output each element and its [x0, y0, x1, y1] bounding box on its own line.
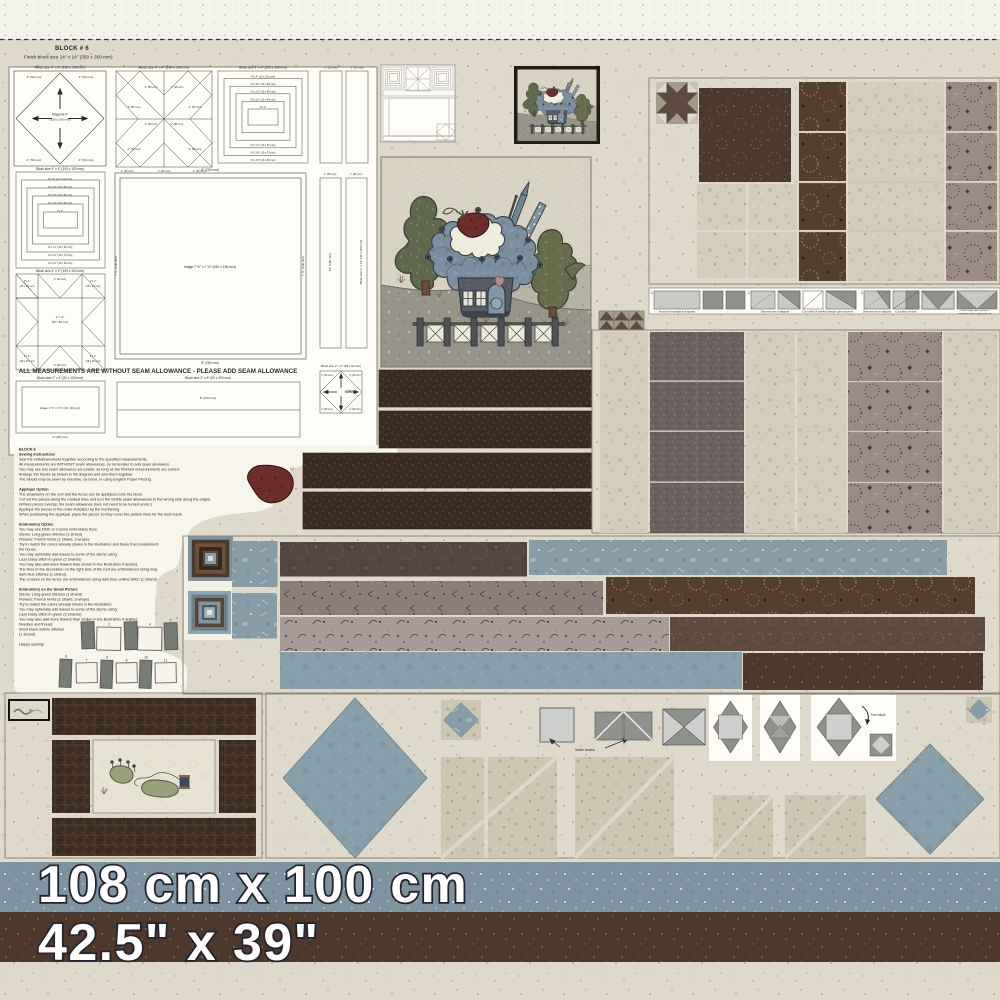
svg-text:2" (50 mm): 2" (50 mm)	[79, 75, 94, 79]
svg-text:Image 7 ½" x 7 ½" (190 x 19: Image 7 ½" x 7 ½" (190 x 190 mm)	[184, 265, 236, 269]
svg-text:2" (50 mm): 2" (50 mm)	[128, 105, 141, 109]
svg-text:1"x 1": 1"x 1"	[24, 355, 31, 358]
svg-text:ALL MEASUREMENTS ARE WITHOUT S: ALL MEASUREMENTS ARE WITHOUT SEAM ALLOWA…	[19, 368, 297, 375]
svg-text:1" (25 mm): 1" (25 mm)	[171, 122, 184, 126]
svg-text:1" (25 mm): 1" (25 mm)	[350, 66, 363, 70]
svg-text:Cut outside of seam: Cut outside of seam	[802, 311, 823, 314]
svg-text:2" (50 mm): 2" (50 mm)	[54, 278, 66, 281]
svg-text:2" (50 mm): 2" (50 mm)	[145, 85, 158, 89]
svg-text:⅜"x 1⅝" (10 x 40 mm): ⅜"x 1⅝" (10 x 40 mm)	[48, 202, 73, 205]
svg-text:Try to match the colors alread: Try to match the colors already shown in…	[19, 543, 159, 547]
svg-text:10: 10	[144, 656, 148, 660]
svg-text:Lazy Daisy stitch in green (2: Lazy Daisy stitch in green (2 strands)	[19, 613, 82, 617]
svg-text:(25 x 25 mm): (25 x 25 mm)	[20, 285, 35, 288]
svg-text:1" (25 mm): 1" (25 mm)	[324, 172, 337, 176]
svg-text:1"x 1": 1"x 1"	[90, 280, 97, 283]
svg-text:1" (25 mm): 1" (25 mm)	[349, 375, 361, 377]
svg-text:2" (50 mm): 2" (50 mm)	[79, 158, 94, 162]
svg-text:6: 6	[65, 655, 67, 659]
svg-text:Appliqué the pieces in the ord: Appliqué the pieces in the order indicat…	[19, 508, 120, 512]
svg-text:1"x 1": 1"x 1"	[24, 280, 31, 283]
svg-text:1"x 1": 1"x 1"	[57, 210, 64, 213]
svg-text:Block size 2" x 4" (50 x 100: Block size 2" x 4" (50 x 100 mm)	[37, 376, 83, 380]
svg-text:8" (200 mm): 8" (200 mm)	[201, 361, 218, 365]
svg-text:(1 strand): (1 strand)	[19, 633, 36, 637]
svg-text:Turn block: Turn block	[871, 713, 886, 717]
svg-text:Block size 4" x 4" (100 x 1: Block size 4" x 4" (100 x 100 mm)	[139, 66, 190, 70]
svg-text:(25 x 25 mm): (25 x 25 mm)	[86, 360, 101, 363]
svg-text:(50 x 50 mm): (50 x 50 mm)	[52, 320, 69, 324]
svg-text:⅜"x 1⅝" (10 x 40 mm): ⅜"x 1⅝" (10 x 40 mm)	[251, 98, 276, 101]
svg-text:⅜"x 2½" (10 x 60 mm): ⅜"x 2½" (10 x 60 mm)	[251, 90, 276, 94]
svg-text:1"x 1": 1"x 1"	[90, 355, 97, 358]
svg-text:Try to match the colors alread: Try to match the colors already shown in…	[19, 603, 113, 607]
svg-text:4: 4	[149, 623, 151, 627]
svg-text:You may use DMC or Cosmo embro: You may use DMC or Cosmo embroidery flos…	[19, 528, 98, 532]
svg-text:Happy sewing!: Happy sewing!	[19, 643, 44, 647]
svg-text:Block size 2" x 2" (50 x 50 m: Block size 2" x 2" (50 x 50 mm)	[321, 364, 361, 368]
svg-text:1" (25 mm): 1" (25 mm)	[145, 122, 158, 126]
svg-text:⅜"x 1⅞" (10 x 50 mm): ⅜"x 1⅞" (10 x 50 mm)	[48, 246, 73, 249]
svg-text:Stems: Long green stitches (1: Stems: Long green stitches (1 strand)	[19, 593, 83, 597]
svg-text:2" (50 mm): 2" (50 mm)	[189, 147, 202, 151]
svg-text:11: 11	[164, 659, 168, 663]
svg-text:1" (25 mm): 1" (25 mm)	[321, 375, 333, 377]
svg-text:Block size 4" x 4" (100 x 10: Block size 4" x 4" (100 x 100 mm)	[36, 167, 84, 171]
svg-text:dark blue stitches (1 strand).: dark blue stitches (1 strand).	[19, 573, 67, 577]
svg-text:The lines in the decoration on: The lines in the decoration on the right…	[19, 568, 157, 572]
svg-text:Block size 4" x 4" (100 x 10: Block size 4" x 4" (100 x 100 mm)	[36, 269, 84, 273]
svg-text:Image 1 ½" x 3 ½" (40 x 90 m: Image 1 ½" x 3 ½" (40 x 90 mm)	[40, 406, 80, 410]
svg-text:3: 3	[130, 618, 132, 622]
svg-text:Embroidery on the Small Pictur: Embroidery on the Small Picture	[19, 588, 78, 592]
svg-text:⅜"x 3⅝" (10 x 90 mm): ⅜"x 3⅝" (10 x 90 mm)	[251, 83, 276, 86]
svg-text:1" (25 mm): 1" (25 mm)	[158, 169, 171, 173]
svg-text:7 ½" (190 mm): 7 ½" (190 mm)	[301, 256, 305, 276]
svg-text:7: 7	[86, 659, 88, 663]
svg-text:2: 2	[108, 623, 110, 627]
svg-text:When positioning the appliqué,: When positioning the appliqué, place the…	[19, 513, 183, 517]
svg-text:You may also add more flowers: You may also add more flowers than shown…	[19, 563, 138, 567]
svg-text:⅜"x 2⅝" (10 x 70 mm): ⅜"x 2⅝" (10 x 70 mm)	[48, 254, 73, 257]
svg-text:Block size 2" x 8" (50 x 20: Block size 2" x 8" (50 x 200 mm)	[185, 376, 231, 380]
svg-text:8: 8	[106, 656, 108, 660]
svg-text:2" (50 mm): 2" (50 mm)	[128, 147, 141, 151]
svg-text:1" (25 mm): 1" (25 mm)	[350, 172, 363, 176]
svg-text:Sew the individual blocks toge: Sew the individual blocks together accor…	[19, 458, 148, 462]
svg-text:1: 1	[87, 618, 89, 622]
svg-text:⅜"x 1⅞" (10 x 50 mm): ⅜"x 1⅞" (10 x 50 mm)	[251, 144, 276, 147]
svg-text:Block size 4" x 4" (100 x 10: Block size 4" x 4" (100 x 100 mm)	[239, 66, 287, 70]
svg-text:(Where pieces overlap, the sea: (Where pieces overlap, the seam allowanc…	[19, 503, 153, 507]
svg-text:⅜"x 4" (10 x 100 mm): ⅜"x 4" (10 x 100 mm)	[251, 76, 275, 79]
svg-text:(25 x 25 mm): (25 x 25 mm)	[20, 360, 35, 363]
svg-text:Block size 1" x 12" (30 x 30: Block size 1" x 12" (30 x 300 mm)	[359, 240, 363, 285]
svg-text:All measurements are WITHOUT s: All measurements are WITHOUT seam allowa…	[19, 463, 170, 467]
svg-text:The blocks may be sewn by mach: The blocks may be sewn by machine, by ha…	[19, 478, 152, 482]
svg-text:2" x 2": 2" x 2"	[56, 315, 65, 319]
svg-text:Short black outline stitches: Short black outline stitches	[19, 628, 64, 632]
svg-text:7 ½" (190 mm): 7 ½" (190 mm)	[114, 256, 118, 276]
svg-text:2" (50 mm): 2" (50 mm)	[27, 158, 42, 162]
svg-text:⅜"x 3⅝" (10 x 90 mm): ⅜"x 3⅝" (10 x 90 mm)	[251, 159, 276, 162]
svg-text:You may optionally add leaves: You may optionally add leaves to some of…	[19, 608, 118, 612]
svg-text:12" (300 mm): 12" (300 mm)	[328, 253, 332, 271]
svg-text:Appliqué Option: Appliqué Option	[19, 488, 49, 492]
svg-text:You may use any seam allowance: You may use any seam allowance you prefe…	[19, 468, 181, 472]
svg-text:(25 x 25 mm): (25 x 25 mm)	[86, 285, 101, 288]
svg-text:Fold triangle open and press: Fold triangle open and press	[823, 311, 854, 314]
svg-text:1" (25 mm): 1" (25 mm)	[321, 409, 333, 411]
svg-text:Finish block size 14" x 14": Finish block size 14" x 14" (350 x 350 m…	[24, 55, 113, 60]
svg-text:108 cm x 100 cm: 108 cm x 100 cm	[38, 856, 468, 914]
svg-text:Needles and thread:: Needles and thread:	[19, 623, 53, 627]
svg-text:Embroidery Option: Embroidery Option	[19, 523, 54, 527]
svg-text:Arrange the blocks as shown in: Arrange the blocks as shown in the diagr…	[19, 473, 133, 477]
svg-text:Stems: Long green stitches (1: Stems: Long green stitches (1 strand)	[19, 533, 83, 537]
svg-text:42.5" x 39": 42.5" x 39"	[38, 914, 320, 972]
svg-text:Diagonal 4": Diagonal 4"	[52, 113, 68, 117]
svg-text:5: 5	[170, 619, 172, 623]
svg-text:1" (25 mm): 1" (25 mm)	[349, 409, 361, 411]
svg-text:⅜"x 2⅝" (10 x 70 mm): ⅜"x 2⅝" (10 x 70 mm)	[251, 151, 276, 154]
svg-text:2" (50 mm): 2" (50 mm)	[54, 364, 66, 367]
svg-text:(100 x 100 mm): (100 x 100 mm)	[49, 118, 70, 122]
svg-text:Make marks: Make marks	[575, 748, 595, 752]
svg-text:The crosses on the fence are e: The crosses on the fence are embroidered…	[19, 578, 158, 582]
svg-text:2" (50 mm): 2" (50 mm)	[27, 75, 42, 79]
svg-text:⅜"x 3⅝" (10 x 90 mm): ⅜"x 3⅝" (10 x 90 mm)	[48, 186, 73, 189]
svg-text:⅜"x 2½" (10 x 60 mm): ⅜"x 2½" (10 x 60 mm)	[48, 193, 73, 197]
svg-text:2.: 2.	[748, 291, 751, 295]
svg-text:8" (200 mm): 8" (200 mm)	[200, 396, 216, 400]
svg-text:⅜"x 4" (10 x 100 mm): ⅜"x 4" (10 x 100 mm)	[48, 178, 72, 181]
svg-text:1.: 1.	[651, 291, 654, 295]
svg-text:Amount of rectangles and squar: Amount of rectangles and squares	[659, 311, 696, 314]
svg-text:8" (200 mm): 8" (200 mm)	[201, 168, 218, 172]
svg-text:⅜"x 3⅝" (10 x 90 mm): ⅜"x 3⅝" (10 x 90 mm)	[48, 262, 73, 265]
svg-text:12: 12	[290, 467, 294, 471]
svg-text:the house.: the house.	[19, 548, 37, 552]
svg-text:3.: 3.	[861, 291, 864, 295]
svg-text:Block size 4" x 4" (100 x 1: Block size 4" x 4" (100 x 100 mm)	[35, 66, 86, 70]
svg-text:2" (50 mm): 2" (50 mm)	[189, 105, 202, 109]
svg-text:9: 9	[126, 659, 128, 663]
svg-text:You may also add more flowers: You may also add more flowers than shown…	[19, 618, 138, 622]
svg-text:1" (25 mm): 1" (25 mm)	[171, 85, 184, 89]
svg-text:You may optionally add leaves: You may optionally add leaves to some of…	[19, 553, 118, 557]
svg-text:Fold triangles open and press: Fold triangles open and press	[961, 309, 991, 312]
svg-text:BLOCK 6: BLOCK 6	[19, 448, 36, 452]
svg-text:The strawberry on the roof and: The strawberry on the roof and the fence…	[19, 493, 143, 497]
svg-text:remember to trim to dogeared s: remember to trim to dogeared size	[958, 312, 992, 315]
svg-text:Cut outside of seam: Cut outside of seam	[895, 311, 916, 314]
svg-text:Sewing Instructions: Sewing Instructions	[19, 453, 55, 457]
svg-text:Draw and sew on diagonal: Draw and sew on diagonal	[863, 311, 892, 314]
svg-text:BLOCK # 6: BLOCK # 6	[55, 46, 89, 52]
svg-text:1"x 1": 1"x 1"	[260, 106, 267, 109]
svg-text:1" (25 mm): 1" (25 mm)	[121, 169, 134, 173]
svg-text:Flowers: French knots (1 stran: Flowers: French knots (1 strand, 3 wraps…	[19, 598, 90, 602]
svg-text:1" (25 mm): 1" (25 mm)	[324, 66, 337, 70]
svg-text:Draw and sew on diagonal: Draw and sew on diagonal	[761, 311, 790, 314]
svg-text:Cut out the pieces along the m: Cut out the pieces along the marked line…	[19, 498, 211, 502]
svg-text:Flowers: French knots (1 stran: Flowers: French knots (1 strand, 3 wraps…	[19, 538, 90, 542]
svg-text:4" (100 mm): 4" (100 mm)	[52, 435, 67, 439]
svg-text:Lazy Daisy stitch in green (2: Lazy Daisy stitch in green (2 strands)	[19, 558, 82, 562]
